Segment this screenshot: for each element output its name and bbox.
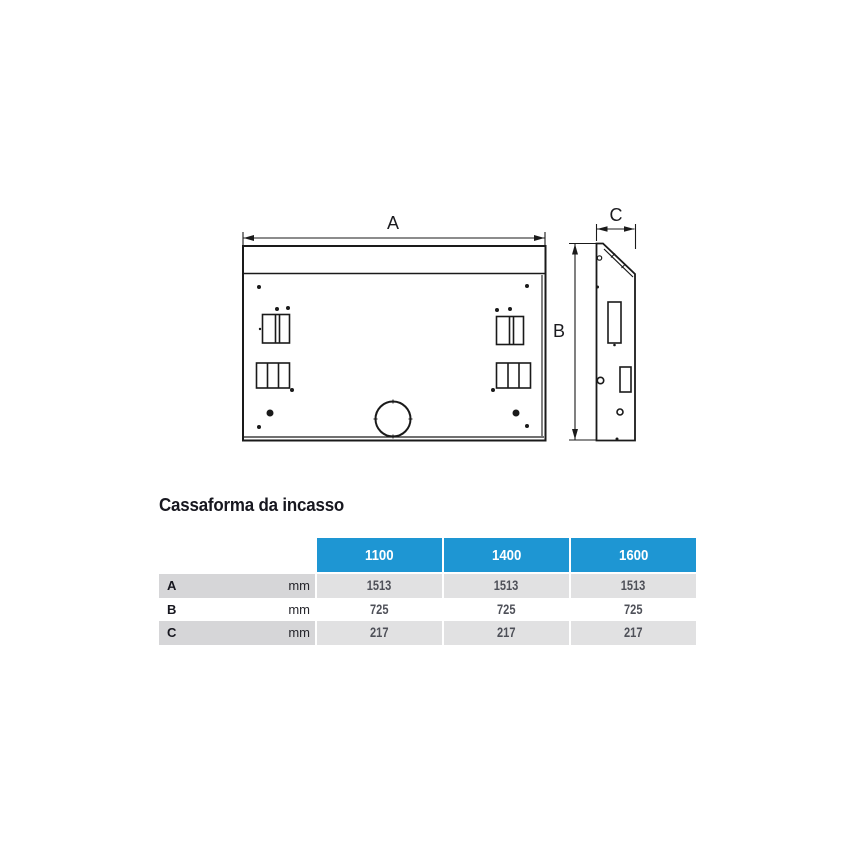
knockout-upper-left (263, 315, 290, 344)
row-unit: mm (288, 602, 310, 617)
dim-c-label: C (610, 205, 623, 225)
dim-a-label: A (387, 213, 399, 233)
column-header-1400: 1400 (444, 538, 569, 572)
knockout-upper-right (497, 317, 524, 345)
side-slot-tall (608, 302, 621, 343)
value-cell: 217 (317, 621, 442, 645)
arrowhead-right (624, 226, 635, 232)
value-cell: 725 (317, 598, 442, 622)
arrowhead-left (244, 235, 255, 241)
page: A B C (0, 0, 850, 850)
side-hole-left (597, 377, 603, 383)
dimension-c: C (597, 205, 636, 249)
value-cell: 217 (571, 621, 696, 645)
column-header-label: 1100 (365, 547, 394, 564)
column-header-1100: 1100 (317, 538, 442, 572)
dimension-b: B (553, 244, 596, 441)
column-header-label: 1400 (492, 547, 521, 564)
value-text: 725 (497, 602, 515, 617)
value-cell: 725 (571, 598, 696, 622)
arrowhead-right (534, 235, 545, 241)
value-cell: 1513 (444, 574, 569, 598)
row-unit: mm (288, 578, 310, 593)
arrowhead-up (572, 244, 578, 255)
value-text: 1513 (621, 578, 646, 593)
side-small-hole-top (597, 256, 601, 260)
dim-b-label: B (553, 321, 565, 341)
side-hole-bottom (617, 409, 623, 415)
table-row-b: B mm 725 725 725 (159, 598, 696, 622)
value-text: 1513 (367, 578, 392, 593)
technical-drawing: A B C (0, 0, 850, 480)
value-cell: 1513 (317, 574, 442, 598)
value-text: 725 (370, 602, 388, 617)
dimension-a: A (243, 213, 545, 245)
mounting-dots (257, 284, 529, 429)
arrowhead-left (597, 226, 608, 232)
knockout-lower-right (497, 363, 531, 388)
value-cell: 217 (444, 621, 569, 645)
section-title: Cassaforma da incasso (159, 495, 344, 516)
knockout-lower-left (257, 363, 290, 388)
row-label: B (167, 602, 176, 617)
value-text: 217 (497, 625, 515, 640)
row-unit: mm (288, 625, 310, 640)
row-label-cell: C mm (159, 621, 315, 645)
value-cell: 1513 (571, 574, 696, 598)
column-header-label: 1600 (619, 547, 648, 564)
value-text: 1513 (494, 578, 519, 593)
arrowhead-down (572, 429, 578, 440)
row-label-cell: A mm (159, 574, 315, 598)
side-slant-inner-line (604, 249, 633, 277)
value-text: 217 (624, 625, 642, 640)
outlet-circle (374, 400, 413, 439)
table-row-c: C mm 217 217 217 (159, 621, 696, 645)
side-view (596, 244, 635, 441)
row-label: A (167, 578, 176, 593)
side-slot-small (620, 367, 631, 392)
value-text: 217 (370, 625, 388, 640)
row-label: C (167, 625, 176, 640)
header-spacer-cell (159, 538, 315, 572)
front-view (243, 246, 546, 441)
table-header-row: 1100 1400 1600 (159, 538, 696, 572)
column-header-1600: 1600 (571, 538, 696, 572)
value-text: 725 (624, 602, 642, 617)
table-row-a: A mm 1513 1513 1513 (159, 574, 696, 598)
row-label-cell: B mm (159, 598, 315, 622)
spec-table: 1100 1400 1600 A mm 1513 1513 1513 B mm … (159, 538, 696, 645)
value-cell: 725 (444, 598, 569, 622)
